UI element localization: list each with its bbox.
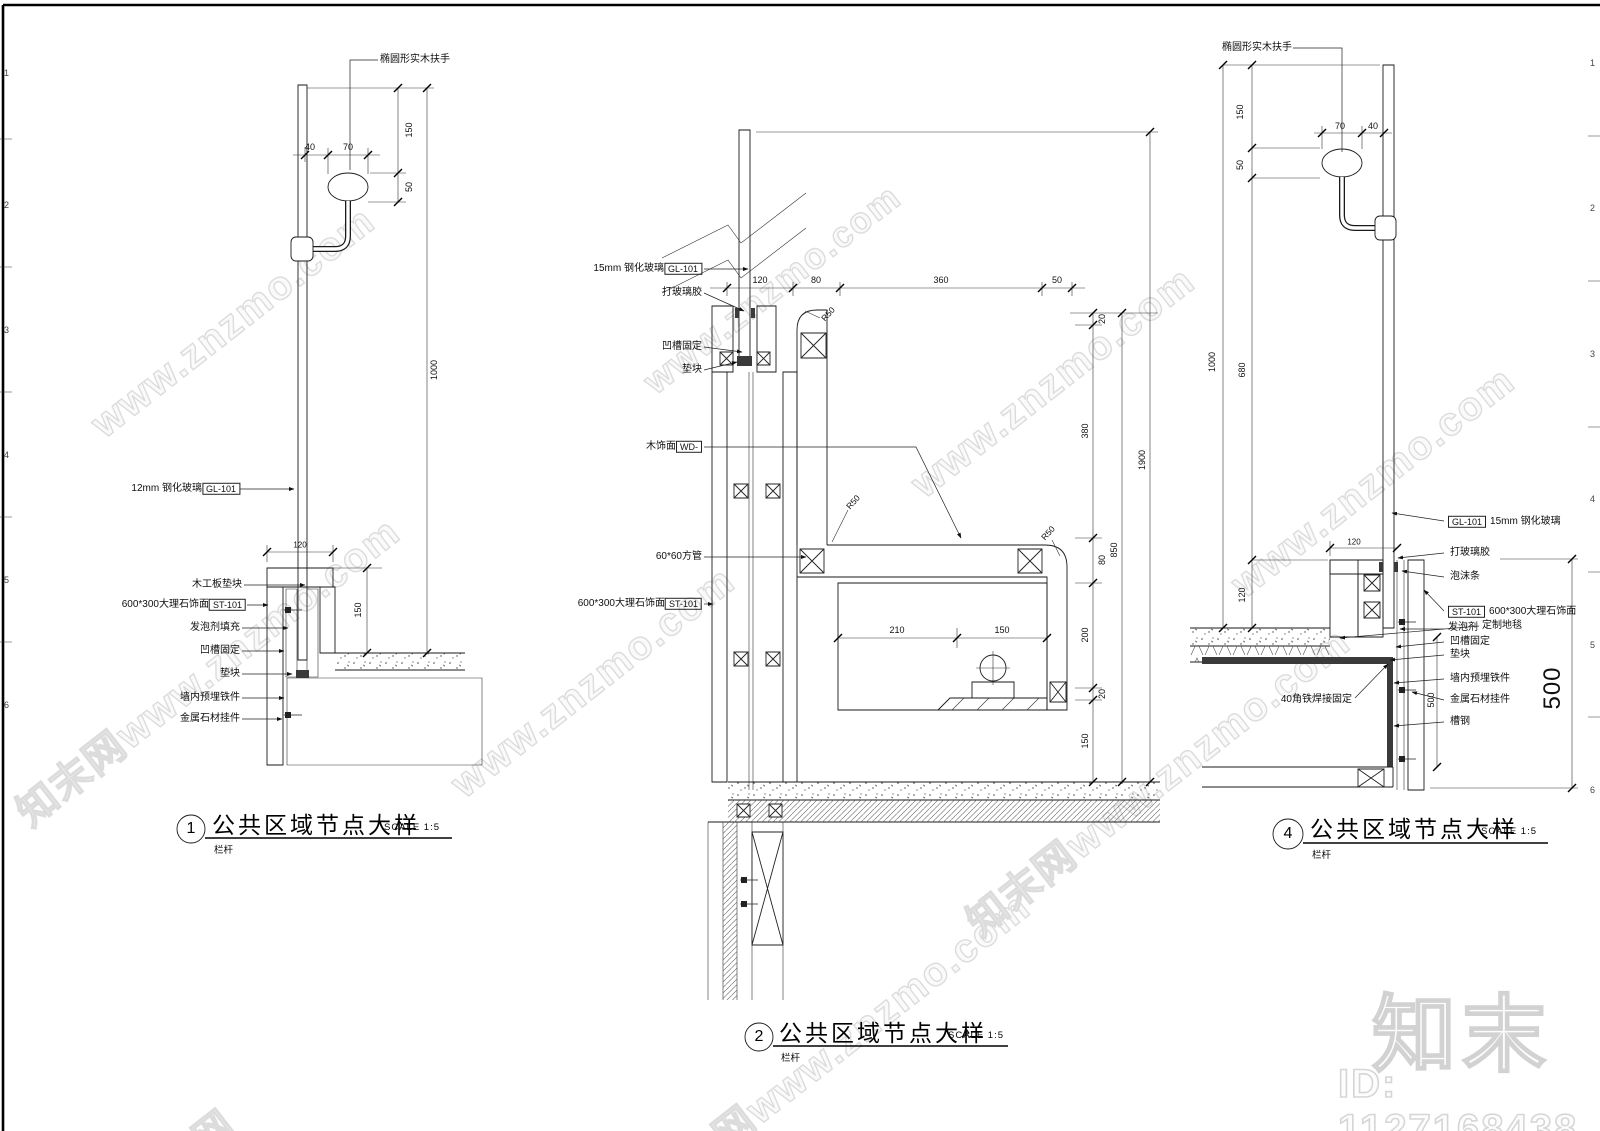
label-pad: 垫块 — [1450, 650, 1470, 660]
border-dashes — [0, 136, 1600, 717]
cad-line — [720, 352, 733, 365]
material-tag: ST-101 — [209, 599, 246, 611]
dim: 40 — [305, 142, 315, 152]
detail-number: 2 — [755, 1028, 764, 1046]
label-foam: 发泡剂 — [1448, 623, 1478, 633]
cad-line — [704, 347, 742, 352]
border-mark-right: 5 — [1590, 640, 1595, 650]
border-mark-right: 4 — [1590, 494, 1595, 504]
border-mark-left: 4 — [4, 450, 9, 460]
cad-line — [757, 352, 770, 365]
border-mark-left: 1 — [4, 68, 9, 78]
label-angle-weld: 40角铁焊接固定 — [1281, 695, 1352, 705]
dim: 70 — [343, 142, 353, 152]
dim: 150 — [353, 602, 363, 617]
detail-4-drawing — [1190, 48, 1578, 790]
label-stone-hanger: 金属石材挂件 — [180, 714, 240, 724]
label-handrail: 椭圆形实木扶手 — [1222, 43, 1292, 53]
label-glass-glue: 打玻璃胶 — [1450, 548, 1490, 558]
dim: 200 — [1080, 627, 1090, 642]
label-wood-pad: 木工板垫块 — [192, 580, 242, 590]
cad-line — [1424, 590, 1444, 611]
label-pad: 垫块 — [220, 669, 240, 679]
detail-number: 1 — [187, 820, 196, 838]
label-carpet: 定制地毯 — [1482, 621, 1522, 631]
dim: 1000 — [429, 360, 439, 380]
detail-subtitle: 栏杆 — [781, 1050, 800, 1064]
material-tag: ST-101 — [1448, 606, 1485, 618]
dim: 1900 — [1137, 450, 1147, 470]
cad-line — [1364, 602, 1380, 618]
cad-line — [1355, 664, 1388, 698]
dim: 380 — [1080, 423, 1090, 438]
dim: 20 — [1097, 314, 1107, 324]
cad-line — [1390, 655, 1444, 660]
cad-line — [1050, 682, 1066, 702]
border-mark-left: 6 — [4, 700, 9, 710]
border-mark-right: 2 — [1590, 203, 1595, 213]
dim: 360 — [933, 275, 948, 285]
dim: 1000 — [1207, 352, 1217, 372]
border-mark-right: 6 — [1590, 785, 1595, 795]
cad-line — [766, 652, 780, 666]
label-channel-steel: 槽钢 — [1450, 717, 1470, 727]
dim: 50 — [1235, 160, 1245, 170]
cad-line — [1392, 513, 1444, 521]
material-tag: WD- — [676, 441, 702, 453]
label-foam-fill: 发泡剂填充 — [190, 623, 240, 633]
cad-line — [800, 549, 824, 573]
dim: 120 — [1347, 538, 1360, 547]
cad-line — [734, 652, 748, 666]
border-mark-right: 3 — [1590, 349, 1595, 359]
dim: 150 — [994, 625, 1009, 635]
cad-line — [801, 333, 826, 358]
cad-line — [1398, 553, 1444, 558]
label-embedded-iron: 墙内预埋铁件 — [180, 693, 240, 703]
label-glass: 15mm 钢化玻璃GL-101 — [593, 263, 702, 275]
cad-line — [769, 804, 782, 817]
dim: 120 — [752, 275, 767, 285]
cad-sheet: www.znzmo.com 知末网www.znzmo.com www.znzmo… — [0, 0, 1600, 1131]
cad-line — [704, 293, 744, 311]
label-groove-fix: 凹槽固定 — [662, 342, 702, 352]
label-stone-hanger: 金属石材挂件 — [1450, 695, 1510, 705]
dim: 150 — [1235, 104, 1245, 119]
detail-2-drawing — [662, 130, 1160, 1000]
dim: 500 — [1426, 692, 1436, 707]
label-glass: 12mm 钢化玻璃GL-101 — [131, 483, 240, 495]
label-marble: 600*300大理石饰面ST-101 — [578, 598, 702, 610]
label-embedded-iron: 墙内预埋铁件 — [1450, 674, 1510, 684]
cad-linework — [0, 0, 1600, 1131]
dim: 680 — [1237, 362, 1247, 377]
detail-1-drawing — [267, 60, 482, 765]
label-marble: 600*300大理石饰面ST-101 — [122, 599, 246, 611]
detail-number: 4 — [1284, 825, 1293, 843]
dim: 120 — [293, 541, 306, 550]
detail-subtitle: 栏杆 — [214, 842, 233, 856]
dim: 120 — [1237, 587, 1247, 602]
dim: 70 — [1335, 121, 1345, 131]
border-mark-left: 2 — [4, 200, 9, 210]
detail-subtitle: 栏杆 — [1312, 847, 1331, 861]
dim: 500 — [1539, 666, 1567, 709]
label-glass: GL-10115mm 钢化玻璃 — [1448, 516, 1561, 528]
cad-line — [737, 804, 750, 817]
cad-line — [734, 484, 748, 498]
detail-scale: SCALE 1:5 — [1481, 826, 1537, 837]
dim: 40 — [1368, 121, 1378, 131]
dim: 80 — [811, 275, 821, 285]
cad-line — [1394, 679, 1444, 683]
cad-line — [1358, 769, 1384, 787]
dim: 210 — [889, 625, 904, 635]
cad-line — [766, 484, 780, 498]
material-tag: GL-101 — [202, 483, 240, 495]
border-mark-left: 5 — [4, 575, 9, 585]
dim: 850 — [1109, 542, 1119, 557]
dim: 150 — [404, 122, 414, 137]
border-mark-right: 1 — [1590, 58, 1595, 68]
dim: 80 — [1097, 555, 1107, 565]
label-glass-glue: 打玻璃胶 — [662, 288, 702, 298]
label-pad: 垫块 — [682, 365, 702, 375]
material-tag: ST-101 — [665, 598, 702, 610]
cad-line — [1018, 549, 1042, 573]
border-mark-left: 3 — [4, 325, 9, 335]
label-square-tube: 60*60方管 — [656, 552, 702, 562]
dim: 50 — [404, 182, 414, 192]
label-handrail: 椭圆形实木扶手 — [380, 55, 450, 65]
material-tag: GL-101 — [664, 263, 702, 275]
dim: 150 — [1080, 733, 1090, 748]
cad-line — [1364, 575, 1380, 591]
dim: 20 — [1097, 689, 1107, 699]
label-groove-fix: 凹槽固定 — [200, 646, 240, 656]
dim: 50 — [1052, 275, 1062, 285]
label-groove-fix: 凹槽固定 — [1450, 637, 1490, 647]
label-wood-finish: 木饰面WD- — [646, 441, 702, 453]
detail-scale: SCALE 1:5 — [384, 822, 440, 833]
label-foam-strip: 泡沫条 — [1450, 572, 1480, 582]
cad-line — [1394, 722, 1444, 726]
detail-scale: SCALE 1:5 — [948, 1030, 1004, 1041]
material-tag: GL-101 — [1448, 516, 1486, 528]
cad-line — [752, 832, 783, 945]
label-marble: ST-101600*300大理石饰面 — [1448, 606, 1576, 618]
